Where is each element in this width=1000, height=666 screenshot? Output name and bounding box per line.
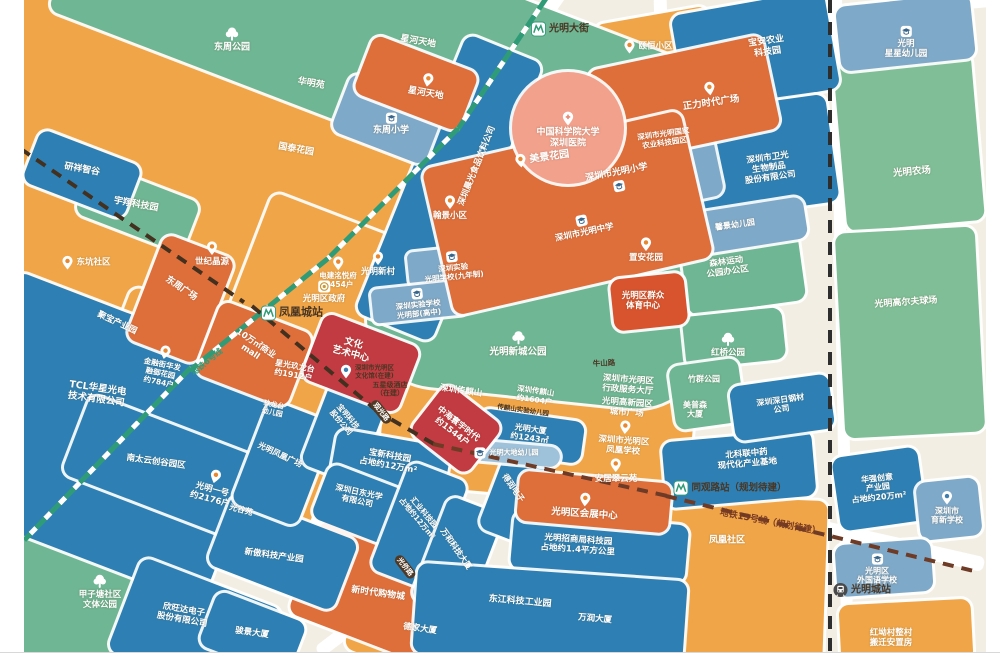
huaqiang-creative-park: 华强创意产业园占地约20万m² [849, 471, 907, 505]
fenghuang-community-line-0: 凤凰社区 [709, 536, 745, 547]
guangming-new-village: 光明新村 [361, 251, 395, 277]
cas-shenzhen-hospital-line-0: 中国科学院大学 [536, 127, 599, 138]
zhian-garden: 置安花园 [629, 237, 663, 263]
gm-starstar-kindergarten-line-0: 光明 [897, 39, 914, 49]
zhuqun-park-text: 竹群公园 [688, 374, 720, 383]
location-pin-icon [444, 195, 456, 210]
tree-icon [721, 332, 735, 347]
gm-dadi-kindergarten-line-0: 光明大地幼儿园 [490, 449, 539, 457]
school-icon [384, 112, 397, 125]
jiazitang-park-line-0: 甲子塘社区 [79, 590, 122, 600]
niushan-road-text: 牛山路 [593, 359, 616, 369]
hongqiao-park: 红桥公园 [711, 332, 745, 358]
shiji-jingyuan-text: 世纪晶源 [195, 257, 229, 267]
guangming-street-station: 光明大街 [531, 22, 589, 37]
dongkeng-community-text: 东坑社区 [76, 258, 110, 268]
district-boundary-line [828, 0, 832, 652]
guangmingcheng-station: 光明城站 [833, 583, 891, 598]
gm-hitech-city-plaza-text: 光明高新园区城市广场 [601, 396, 653, 420]
five-star-hotel-line-0: 五星级酒店 [373, 381, 408, 389]
location-pin-icon [514, 153, 528, 170]
dongzhou-primary-text: 东周小学 [373, 126, 409, 137]
location-pin-icon [702, 81, 716, 98]
tongguan-road-station-line-0: 同观路站（规划待建） [691, 482, 786, 493]
culture-art-center-note-line-1: 文化馆(在建) [355, 372, 393, 380]
niushan-road-line-0: 牛山路 [593, 359, 616, 369]
zhuqun-park: 竹群公园 [688, 374, 720, 383]
zhian-garden-line-0: 置安花园 [629, 253, 663, 263]
guangmingcheng-station-text: 光明城站 [851, 584, 891, 596]
fenghuang-community-text: 凤凰社区 [709, 536, 745, 547]
metro-icon [673, 481, 688, 496]
tree-icon [511, 330, 525, 345]
gm-starstar-kindergarten-text: 光明星星幼儿园 [885, 39, 928, 59]
dongjiang-block [412, 563, 688, 666]
cas-shenzhen-hospital-text: 中国科学院大学深圳医院 [536, 127, 599, 148]
meipusen-tower: 美普森大厦 [683, 401, 707, 420]
tree-icon [93, 574, 107, 589]
metro-icon [531, 22, 546, 37]
yiheng-estate-line-0: 颐恒小区 [638, 42, 672, 52]
gov-icon [317, 280, 330, 293]
anju-cuiyun-yuan-text: 安居翠云苑 [595, 474, 638, 484]
gm-newtown-park-line-0: 光明新城公园 [489, 346, 546, 357]
right-margin [986, 0, 1000, 666]
yuxin-school-line-1: 育新学校 [931, 516, 963, 525]
dongzhou-park: 东周公园 [214, 27, 250, 54]
tree-icon [225, 27, 239, 42]
dongkeng-community: 东坑社区 [61, 256, 110, 271]
zhian-garden-text: 置安花园 [629, 253, 663, 263]
dongzhou-park-line-0: 东周公园 [214, 43, 250, 54]
gm-convention-center: 光明区会展中心 [551, 490, 619, 522]
location-pin-icon [421, 72, 435, 89]
yuxin-school: 深圳市育新学校 [931, 491, 963, 526]
gm-district-government-text: 光明区政府 [303, 294, 346, 304]
yuxin-school-text: 深圳市育新学校 [931, 507, 963, 526]
five-star-hotel-text: 五星级酒店（在建） [373, 381, 408, 398]
gm-starstar-kindergarten-line-1: 星星幼儿园 [885, 49, 928, 59]
shiji-jingyuan: 世纪晶源 [195, 241, 229, 267]
niushan-road: 牛山路 [593, 359, 616, 369]
anju-cuiyun-yuan-line-0: 安居翠云苑 [595, 474, 638, 484]
hongqiao-park-text: 红桥公园 [711, 348, 745, 358]
golf-course-block [835, 226, 986, 438]
map-canvas: 东周公园华明苑国泰花园研祥智谷宇翔科技园星河天地星河天地东周小学翰景小区世纪晶源… [0, 0, 1000, 666]
guangming-street-station-line-0: 光明大街 [549, 23, 589, 35]
sz-exp-guangming-school: 深圳实验光明学校(九年制) [422, 247, 484, 285]
med-icon [561, 111, 574, 126]
location-pin-icon [206, 241, 218, 256]
gm-district-government-line-0: 光明区政府 [303, 294, 346, 304]
location-pin-icon [623, 40, 635, 55]
location-pin-icon [61, 256, 73, 271]
anju-cuiyun-yuan: 安居翠云苑 [595, 458, 638, 484]
cas-shenzhen-hospital-line-1: 深圳医院 [550, 138, 586, 149]
tongguan-road-station-text: 同观路站（规划待建） [691, 482, 786, 493]
hongao-resettlement-line-1: 搬迁安置房 [870, 638, 913, 648]
gm-fenghuang-school-text: 深圳市光明区凤凰学校 [597, 434, 649, 458]
gm-dadi-kindergarten: 光明大地幼儿园 [474, 447, 539, 460]
dongzhou-primary-line-0: 东周小学 [373, 126, 409, 137]
left-margin [0, 0, 24, 666]
huaqiang-creative-park-text: 华强创意产业园占地约20万m² [849, 471, 907, 505]
five-star-hotel-line-1: （在建） [376, 389, 404, 397]
location-pin-icon [332, 256, 344, 271]
hanjing-estate-line-0: 翰景小区 [433, 211, 467, 221]
gm-dadi-kindergarten-text: 光明大地幼儿园 [490, 449, 539, 457]
hanjing-estate-text: 翰景小区 [433, 211, 467, 221]
guangmingcheng-station-line-0: 光明城站 [851, 584, 891, 596]
gm-public-sports-center-text: 光明区群众体育中心 [622, 291, 665, 311]
gm-newtown-park: 光明新城公园 [489, 330, 546, 357]
location-pin-icon [340, 365, 352, 380]
school-icon [474, 447, 487, 460]
train-icon [833, 583, 848, 598]
cas-shenzhen-hospital: 中国科学院大学深圳医院 [536, 111, 599, 148]
yiheng-estate-text: 颐恒小区 [638, 42, 672, 52]
hongqiao-park-line-0: 红桥公园 [711, 348, 745, 358]
jiazitang-park-text: 甲子塘社区文体公园 [79, 590, 122, 610]
metro-icon [261, 306, 276, 321]
bottom-margin [0, 652, 1000, 666]
culture-art-center-note-text: 深圳市光明区文化馆(在建) [355, 364, 394, 379]
guangming-street-station-text: 光明大街 [549, 23, 589, 35]
location-pin-icon [610, 458, 622, 473]
location-pin-icon [618, 420, 631, 436]
five-star-hotel: 五星级酒店（在建） [373, 381, 408, 398]
zhuqun-park-line-0: 竹群公园 [688, 374, 720, 383]
gm-public-sports-center-line-0: 光明区群众 [622, 291, 665, 301]
gm-foreign-language-school: 光明区外国语学校 [857, 553, 897, 586]
gm-starstar-kindergarten: 光明星星幼儿园 [885, 25, 928, 59]
yiheng-estate: 颐恒小区 [623, 40, 672, 55]
school-icon [899, 25, 912, 38]
dongkeng-community-line-0: 东坑社区 [76, 258, 110, 268]
culture-art-center-note: 深圳市光明区文化馆(在建) [340, 364, 394, 379]
dongzhou-primary: 东周小学 [373, 112, 409, 137]
location-pin-icon [208, 468, 223, 486]
school-icon [611, 178, 626, 193]
gm-public-sports-center: 光明区群众体育中心 [622, 291, 665, 311]
gm-hitech-city-plaza: 光明高新园区城市广场 [601, 396, 653, 420]
gm-admin-service-hall-text: 深圳市光明区行政服务大厅 [602, 373, 654, 397]
gm-fenghuang-school: 深圳市光明区凤凰学校 [597, 418, 650, 458]
school-icon [871, 553, 884, 566]
fenghuangcheng-station-text: 凤凰城站 [279, 307, 323, 320]
tongguan-road-station: 同观路站（规划待建） [673, 481, 786, 496]
gm-public-sports-center-line-1: 体育中心 [626, 301, 660, 311]
jiazitang-park: 甲子塘社区文体公园 [79, 574, 122, 610]
fenghuangcheng-station-line-0: 凤凰城站 [279, 307, 323, 320]
gm-newtown-park-text: 光明新城公园 [489, 346, 546, 357]
guangming-new-village-line-0: 光明新村 [361, 267, 395, 277]
meipusen-tower-line-1: 大厦 [687, 410, 703, 419]
jiazitang-park-line-1: 文体公园 [83, 600, 117, 610]
location-pin-icon [640, 237, 652, 252]
sz-exp-guangming-high: 深圳实验学校光明部(高中) [394, 285, 442, 321]
hongao-resettlement: 红坳村整村搬迁安置房 [870, 628, 913, 648]
gm-district-government: 光明区政府 [303, 280, 346, 304]
shiji-jingyuan-line-0: 世纪晶源 [195, 257, 229, 267]
hongao-resettlement-text: 红坳村整村搬迁安置房 [870, 628, 913, 648]
meipusen-tower-text: 美普森大厦 [683, 401, 707, 420]
guangming-farm-block [833, 52, 985, 231]
hongao-resettlement-line-0: 红坳村整村 [870, 628, 913, 638]
fenghuangcheng-station: 凤凰城站 [261, 306, 323, 321]
location-pin-icon [941, 491, 953, 506]
dongzhou-park-text: 东周公园 [214, 43, 250, 54]
fenghuang-community: 凤凰社区 [709, 536, 745, 547]
guangming-new-village-text: 光明新村 [361, 267, 395, 277]
location-pin-icon [579, 492, 592, 508]
location-pin-icon [372, 251, 384, 266]
gm-admin-service-hall: 深圳市光明区行政服务大厅 [602, 373, 654, 397]
